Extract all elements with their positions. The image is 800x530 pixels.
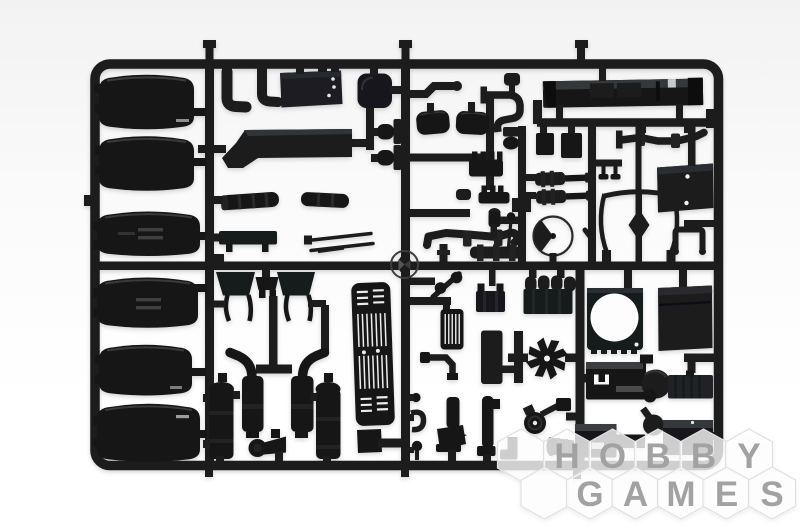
svg-text:B: B [691,437,716,476]
svg-text:O: O [599,437,626,476]
svg-text:H: H [554,437,579,476]
svg-text:S: S [760,475,783,514]
svg-text:B: B [645,437,670,476]
svg-text:M: M [666,475,695,514]
svg-text:G: G [576,475,603,514]
svg-text:E: E [715,475,738,514]
svg-text:A: A [623,475,648,514]
svg-text:Y: Y [737,437,760,476]
